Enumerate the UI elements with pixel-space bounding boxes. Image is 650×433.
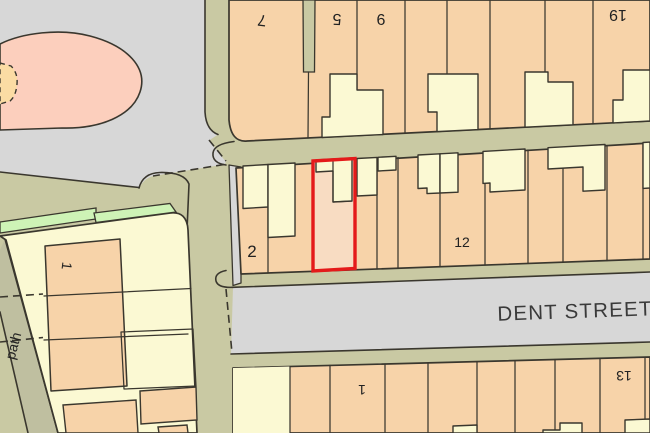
building-footprint: [440, 153, 458, 193]
cadastral-map: 7 5 6 19 2 12: [0, 0, 650, 433]
parcel-label-1-south: 1: [358, 382, 366, 398]
building-footprint: [63, 400, 138, 433]
building-footprint: [643, 142, 650, 188]
north-terrace-block: 7 5 6 19: [229, 0, 650, 141]
parcel-label-5: 5: [332, 10, 342, 27]
building-footprint: [453, 425, 477, 433]
building-footprint: [140, 387, 197, 424]
verge-bar: [303, 0, 315, 72]
parcel-label-19: 19: [609, 6, 627, 23]
cream-parcel: [233, 367, 290, 433]
building-footprint: [268, 163, 295, 238]
building-footprint: [625, 419, 650, 433]
parcel-label-13: 13: [616, 368, 632, 384]
map-viewport: 7 5 6 19 2 12: [0, 0, 650, 433]
building-footprint: [483, 149, 525, 192]
parcel-label-6: 6: [377, 12, 386, 29]
building-footprint: [243, 165, 268, 209]
highlighted-parcel[interactable]: [313, 158, 355, 271]
building-footprint: [45, 239, 127, 391]
parcel-label-2: 2: [247, 242, 256, 261]
south-terrace-block: 1 13: [233, 357, 650, 433]
parcel-label-12: 12: [454, 234, 470, 250]
building-footprint: [158, 425, 188, 433]
building-footprint: [357, 157, 377, 196]
building-footprint: [378, 156, 396, 171]
building-footprint: [418, 154, 440, 194]
